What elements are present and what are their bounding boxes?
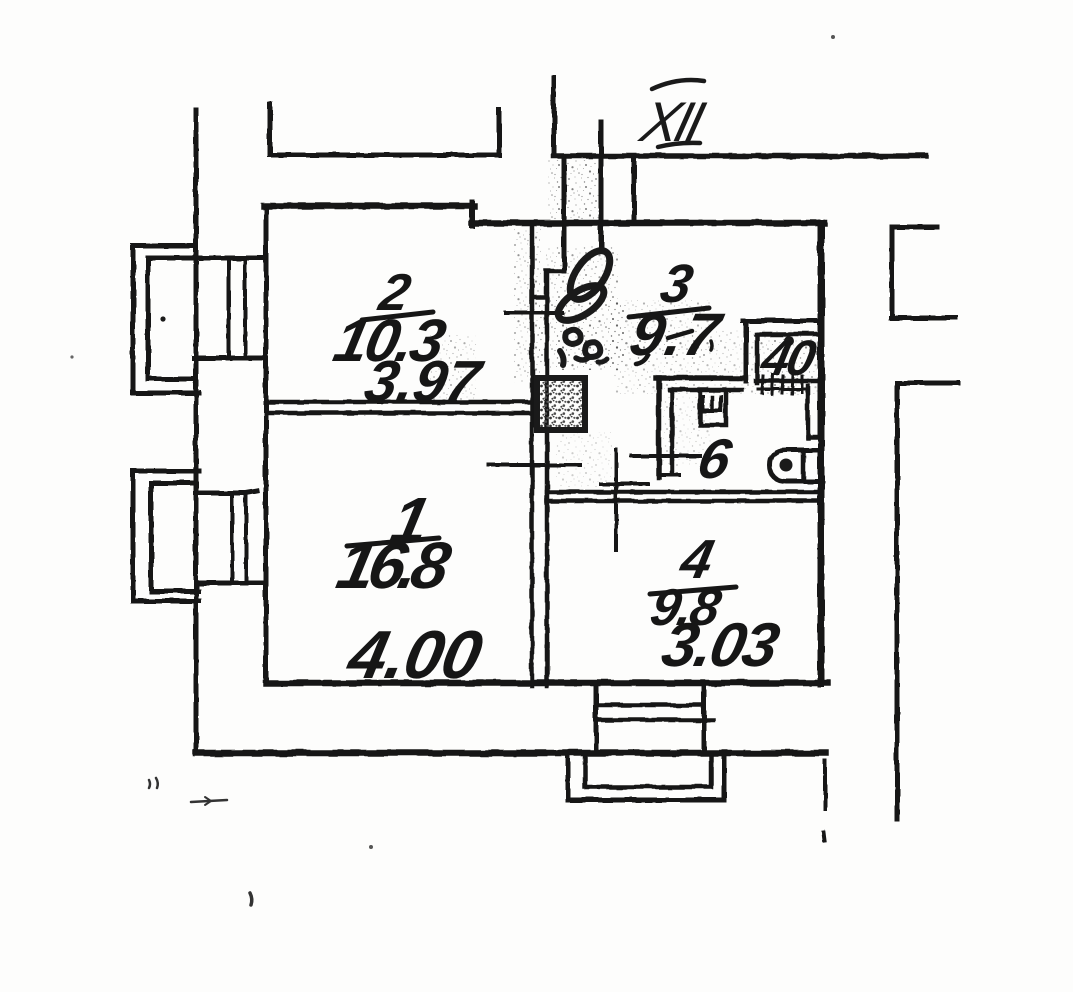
svg-text:3.03: 3.03: [656, 611, 786, 680]
svg-text:4.00: 4.00: [340, 617, 489, 693]
svg-text:3.97: 3.97: [359, 350, 488, 414]
